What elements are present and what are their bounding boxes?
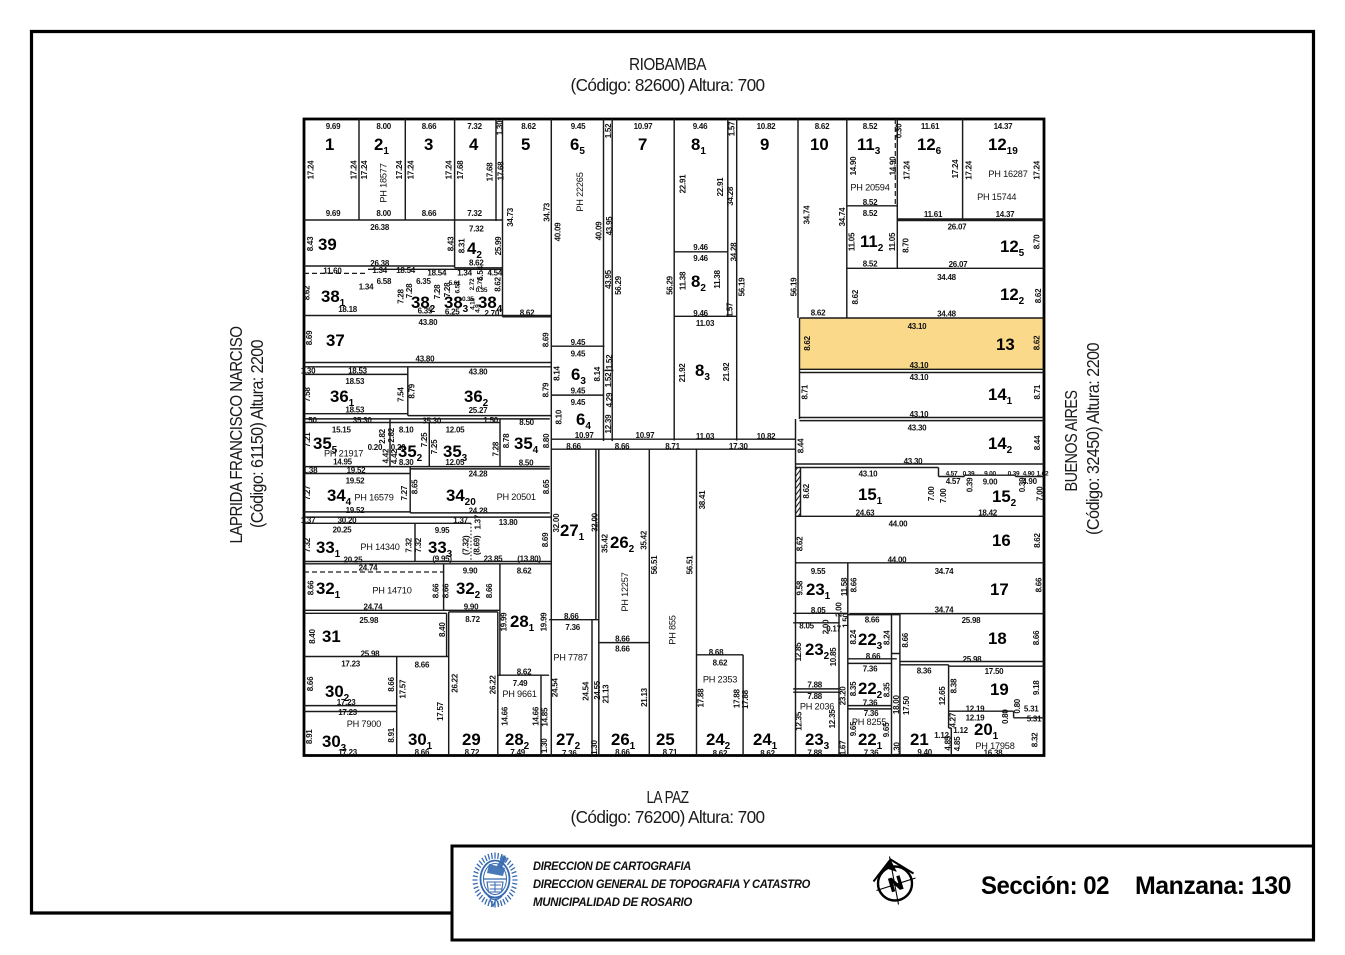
svg-text:11.61: 11.61: [924, 210, 943, 219]
svg-text:43.10: 43.10: [910, 410, 930, 419]
svg-text:11.03: 11.03: [696, 432, 715, 441]
svg-text:25.98: 25.98: [361, 650, 381, 659]
svg-text:7.36: 7.36: [863, 664, 878, 673]
svg-text:43.95: 43.95: [604, 269, 613, 289]
svg-text:17.24: 17.24: [1032, 160, 1041, 180]
svg-text:14.90: 14.90: [889, 156, 898, 176]
svg-text:18.42: 18.42: [978, 508, 998, 517]
svg-text:PH 14710: PH 14710: [372, 586, 411, 596]
svg-text:PH 18577: PH 18577: [379, 163, 389, 202]
svg-text:14.37: 14.37: [994, 122, 1014, 131]
svg-text:1.34: 1.34: [359, 282, 374, 291]
svg-text:11.58: 11.58: [840, 577, 849, 596]
svg-text:56.51: 56.51: [686, 555, 695, 575]
svg-text:8.00: 8.00: [376, 122, 391, 131]
svg-text:11.05: 11.05: [848, 232, 857, 251]
svg-text:17.68: 17.68: [496, 161, 505, 181]
svg-text:24.63: 24.63: [856, 509, 876, 518]
svg-text:8.38: 8.38: [950, 678, 959, 693]
svg-text:0.80: 0.80: [1013, 698, 1022, 713]
svg-text:9.45: 9.45: [571, 398, 586, 407]
svg-text:24.28: 24.28: [469, 470, 489, 479]
svg-text:21.13: 21.13: [601, 684, 610, 704]
svg-text:7.00: 7.00: [927, 486, 936, 501]
svg-text:40.09: 40.09: [595, 221, 604, 241]
svg-text:PH 20501: PH 20501: [497, 492, 536, 502]
svg-text:7.54: 7.54: [396, 387, 405, 402]
svg-text:7.32: 7.32: [467, 122, 482, 131]
svg-text:Manzana: 130: Manzana: 130: [1135, 872, 1291, 900]
svg-text:9.46: 9.46: [693, 309, 708, 318]
svg-text:43.80: 43.80: [419, 318, 439, 327]
svg-text:1: 1: [325, 135, 334, 154]
svg-text:1.57: 1.57: [728, 121, 737, 136]
svg-text:1.62: 1.62: [1037, 470, 1049, 477]
svg-text:26.22: 26.22: [489, 675, 498, 695]
svg-text:34.28: 34.28: [726, 186, 735, 206]
svg-text:8.66: 8.66: [1032, 630, 1041, 645]
svg-text:5.31: 5.31: [1024, 704, 1039, 713]
svg-text:8.36: 8.36: [917, 667, 932, 676]
svg-text:24.55: 24.55: [593, 680, 602, 700]
svg-text:8.91: 8.91: [387, 727, 396, 742]
svg-text:17.24: 17.24: [965, 160, 974, 180]
svg-text:7.36: 7.36: [562, 749, 577, 758]
svg-text:1.52: 1.52: [604, 123, 613, 138]
svg-text:12.05: 12.05: [446, 426, 466, 435]
svg-text:8.62: 8.62: [713, 659, 728, 668]
svg-text:4.85: 4.85: [953, 736, 962, 751]
svg-text:17.24: 17.24: [445, 160, 454, 180]
svg-text:9.45: 9.45: [571, 350, 586, 359]
svg-text:18.18: 18.18: [338, 305, 358, 314]
svg-text:9.65: 9.65: [849, 721, 858, 736]
svg-text:8.62: 8.62: [521, 122, 536, 131]
svg-text:PH 2353: PH 2353: [703, 675, 737, 685]
svg-text:4.85: 4.85: [944, 735, 953, 750]
svg-text:9.40: 9.40: [917, 748, 932, 757]
svg-text:PH 16287: PH 16287: [988, 169, 1027, 179]
svg-text:35.42: 35.42: [640, 530, 649, 550]
svg-text:8.14: 8.14: [593, 366, 602, 381]
svg-text:0.39: 0.39: [963, 470, 975, 477]
svg-text:8.62: 8.62: [469, 259, 484, 268]
svg-text:4: 4: [469, 135, 479, 154]
svg-text:8.62: 8.62: [1034, 288, 1043, 303]
svg-text:8.62: 8.62: [851, 289, 860, 304]
svg-text:43.10: 43.10: [859, 469, 879, 478]
svg-text:34.73: 34.73: [506, 207, 515, 227]
svg-text:17.23: 17.23: [337, 698, 357, 707]
svg-text:8.14: 8.14: [552, 366, 561, 381]
svg-text:8.35: 8.35: [849, 681, 858, 696]
svg-text:LAPRIDA FRANCISCO NARCISO: LAPRIDA FRANCISCO NARCISO: [226, 326, 246, 543]
svg-text:9.69: 9.69: [326, 122, 341, 131]
svg-text:8.44: 8.44: [796, 438, 805, 453]
svg-text:22.91: 22.91: [679, 174, 688, 194]
svg-text:10.97: 10.97: [636, 431, 656, 440]
svg-text:17: 17: [990, 580, 1009, 599]
svg-text:8.62: 8.62: [802, 483, 811, 498]
svg-text:9.58: 9.58: [796, 580, 805, 595]
svg-text:17.24: 17.24: [360, 160, 369, 180]
svg-text:43.80: 43.80: [469, 368, 489, 377]
svg-text:31: 31: [322, 627, 341, 646]
svg-text:38.41: 38.41: [698, 490, 707, 510]
svg-text:8.66: 8.66: [615, 748, 630, 757]
svg-text:8.68: 8.68: [709, 648, 724, 657]
svg-text:0.39: 0.39: [966, 477, 975, 492]
svg-text:11.38: 11.38: [713, 270, 722, 289]
svg-text:43.95: 43.95: [605, 216, 614, 236]
svg-text:24.74: 24.74: [364, 603, 384, 612]
svg-text:(7.32): (7.32): [462, 535, 471, 555]
svg-text:29: 29: [462, 730, 481, 749]
svg-text:9.95: 9.95: [435, 526, 450, 535]
svg-text:18.00: 18.00: [892, 695, 901, 715]
svg-text:17.24: 17.24: [407, 160, 416, 180]
svg-text:9.45: 9.45: [571, 122, 586, 131]
svg-text:34.28: 34.28: [730, 242, 739, 262]
svg-text:19.52: 19.52: [346, 477, 366, 486]
svg-text:18.53: 18.53: [345, 377, 365, 386]
svg-text:35.30: 35.30: [353, 416, 373, 425]
svg-text:(Código: 76200) Altura: 700: (Código: 76200) Altura: 700: [570, 807, 764, 827]
svg-text:4.57: 4.57: [946, 477, 961, 486]
svg-text:(Código: 32450) Altura: 2200: (Código: 32450) Altura: 2200: [1083, 343, 1103, 535]
svg-text:7.27: 7.27: [303, 485, 312, 500]
svg-text:44.00: 44.00: [889, 519, 909, 528]
svg-text:16: 16: [992, 531, 1011, 550]
svg-text:12.35: 12.35: [795, 711, 804, 731]
svg-text:9.46: 9.46: [693, 254, 708, 263]
svg-text:7.49: 7.49: [510, 748, 525, 757]
svg-text:7.88: 7.88: [807, 681, 822, 690]
svg-text:8.05: 8.05: [799, 621, 814, 630]
svg-text:34.48: 34.48: [937, 273, 957, 282]
svg-text:MUNICIPALIDAD DE ROSARIO: MUNICIPALIDAD DE ROSARIO: [533, 896, 692, 909]
svg-text:15.15: 15.15: [332, 426, 352, 435]
svg-text:8.50: 8.50: [519, 418, 534, 427]
svg-text:18.53: 18.53: [348, 366, 368, 375]
svg-text:2.00: 2.00: [835, 602, 844, 617]
svg-text:PH 20594: PH 20594: [850, 183, 889, 193]
svg-text:1.30: 1.30: [892, 742, 901, 757]
svg-text:8.05: 8.05: [811, 606, 826, 615]
svg-text:25.27: 25.27: [469, 406, 489, 415]
svg-text:DIRECCION DE CARTOGRAFIA: DIRECCION DE CARTOGRAFIA: [533, 860, 691, 873]
svg-text:18: 18: [988, 629, 1007, 648]
svg-text:1.34: 1.34: [457, 269, 472, 278]
svg-text:25.98: 25.98: [359, 616, 379, 625]
svg-text:8.62: 8.62: [1033, 335, 1042, 350]
svg-text:25.98: 25.98: [963, 655, 983, 664]
svg-text:25.99: 25.99: [494, 236, 503, 256]
svg-text:8.40: 8.40: [438, 622, 447, 637]
svg-text:8.66: 8.66: [566, 442, 581, 451]
svg-text:25: 25: [656, 730, 675, 749]
svg-text:9.45: 9.45: [571, 338, 586, 347]
svg-text:17.24: 17.24: [395, 160, 404, 180]
svg-text:8.66: 8.66: [387, 676, 396, 691]
svg-text:7.32: 7.32: [467, 209, 482, 218]
svg-text:PH 7787: PH 7787: [553, 653, 587, 663]
svg-text:8.24: 8.24: [883, 630, 892, 645]
svg-text:8.65: 8.65: [542, 479, 551, 494]
svg-text:12.39: 12.39: [604, 414, 613, 434]
svg-text:17.88: 17.88: [697, 688, 706, 708]
svg-text:8.62: 8.62: [517, 667, 532, 676]
svg-text:8.71: 8.71: [801, 384, 810, 399]
svg-text:4.54: 4.54: [488, 269, 503, 278]
svg-text:8.72: 8.72: [465, 748, 480, 757]
svg-text:18.54: 18.54: [396, 266, 416, 275]
svg-text:7.32: 7.32: [303, 537, 312, 552]
svg-text:RIOBAMBA: RIOBAMBA: [629, 54, 707, 74]
svg-text:17.24: 17.24: [349, 160, 358, 180]
svg-text:4.9: 4.9: [475, 304, 482, 313]
svg-text:8.80: 8.80: [542, 433, 551, 448]
svg-text:4.42: 4.42: [381, 448, 390, 463]
svg-text:2.82: 2.82: [378, 428, 387, 443]
svg-text:0.30: 0.30: [894, 123, 903, 138]
svg-text:7.32: 7.32: [405, 537, 414, 552]
svg-text:8.62: 8.62: [803, 335, 812, 350]
svg-text:8.62: 8.62: [493, 276, 502, 291]
svg-text:26.07: 26.07: [949, 260, 969, 269]
svg-text:12.65: 12.65: [938, 686, 947, 706]
svg-text:4.29: 4.29: [605, 392, 614, 407]
svg-text:6.35: 6.35: [416, 277, 431, 286]
svg-text:17.68: 17.68: [486, 162, 495, 182]
svg-text:8.65: 8.65: [410, 479, 419, 494]
svg-text:8.62: 8.62: [517, 566, 532, 575]
svg-text:8.71: 8.71: [1033, 384, 1042, 399]
svg-text:3: 3: [424, 135, 433, 154]
svg-text:6.58: 6.58: [377, 277, 392, 286]
svg-text:7.00: 7.00: [1036, 486, 1045, 501]
svg-text:(13.80): (13.80): [517, 555, 541, 564]
svg-text:7: 7: [638, 135, 647, 154]
svg-text:Sección: 02: Sección: 02: [981, 872, 1109, 900]
svg-text:9: 9: [760, 135, 769, 154]
svg-text:8.40: 8.40: [308, 629, 317, 644]
svg-text:8.66: 8.66: [442, 583, 451, 598]
svg-text:1.57: 1.57: [726, 302, 735, 317]
svg-text:22.91: 22.91: [716, 177, 725, 197]
svg-text:8.79: 8.79: [408, 383, 417, 398]
svg-text:7.25: 7.25: [430, 439, 439, 454]
svg-text:17.88: 17.88: [732, 689, 741, 709]
svg-text:1.37: 1.37: [474, 514, 483, 529]
svg-text:5.31: 5.31: [1027, 715, 1042, 724]
svg-text:8.69: 8.69: [542, 332, 551, 347]
svg-text:37: 37: [326, 331, 345, 350]
svg-text:8.62: 8.62: [1033, 533, 1042, 548]
svg-text:8.66: 8.66: [850, 577, 859, 592]
svg-text:21.13: 21.13: [640, 687, 649, 707]
svg-text:30.20: 30.20: [338, 516, 358, 525]
svg-text:11.61: 11.61: [921, 122, 940, 131]
svg-text:43.30: 43.30: [904, 457, 924, 466]
svg-text:9.18: 9.18: [1032, 680, 1041, 695]
svg-text:1.50: 1.50: [302, 416, 317, 425]
svg-text:56.19: 56.19: [738, 277, 747, 297]
svg-text:9.90: 9.90: [464, 603, 479, 612]
svg-text:14.95: 14.95: [333, 457, 353, 466]
svg-text:12.05: 12.05: [445, 458, 465, 467]
svg-text:14.66: 14.66: [531, 706, 540, 726]
svg-text:43.30: 43.30: [908, 424, 928, 433]
svg-text:14.66: 14.66: [500, 706, 509, 726]
svg-text:34.74: 34.74: [935, 606, 955, 615]
svg-text:12.85: 12.85: [794, 642, 803, 662]
svg-text:8.79: 8.79: [542, 382, 551, 397]
svg-text:PH 12257: PH 12257: [620, 572, 630, 611]
svg-text:17.57: 17.57: [399, 679, 408, 699]
svg-text:9.46: 9.46: [693, 122, 708, 131]
svg-text:8.72: 8.72: [465, 615, 480, 624]
svg-text:34.74: 34.74: [803, 205, 812, 225]
svg-text:8.66: 8.66: [431, 583, 440, 598]
svg-text:8.62: 8.62: [815, 122, 830, 131]
svg-text:56.29: 56.29: [614, 275, 623, 295]
svg-text:34.48: 34.48: [937, 310, 957, 319]
svg-text:24.74: 24.74: [359, 563, 379, 572]
svg-text:6.25: 6.25: [445, 308, 460, 317]
svg-text:8.66: 8.66: [306, 676, 315, 691]
svg-text:1.38: 1.38: [303, 466, 318, 475]
svg-text:1.50: 1.50: [483, 416, 498, 425]
svg-text:9.00: 9.00: [983, 477, 998, 486]
svg-text:9.69: 9.69: [326, 209, 341, 218]
svg-text:26.22: 26.22: [451, 673, 460, 693]
svg-text:7.88: 7.88: [807, 748, 822, 757]
svg-text:8.43: 8.43: [447, 236, 456, 251]
svg-text:56.29: 56.29: [666, 275, 675, 295]
svg-text:8.31: 8.31: [458, 238, 467, 253]
svg-text:7.21: 7.21: [303, 432, 312, 447]
svg-text:8.66: 8.66: [415, 748, 430, 757]
svg-text:23.85: 23.85: [484, 555, 504, 564]
svg-text:(Código: 82600) Altura: 700: (Código: 82600) Altura: 700: [570, 75, 764, 95]
svg-text:17.23: 17.23: [338, 708, 358, 717]
svg-text:8.52: 8.52: [863, 122, 878, 131]
svg-text:9.65: 9.65: [882, 722, 891, 737]
svg-text:24.54: 24.54: [550, 678, 559, 698]
svg-text:2.70: 2.70: [485, 309, 500, 318]
svg-text:19: 19: [990, 680, 1009, 699]
svg-text:21.92: 21.92: [678, 363, 687, 383]
svg-text:43.10: 43.10: [910, 373, 930, 382]
svg-text:8.62: 8.62: [520, 309, 535, 318]
svg-text:14.85: 14.85: [541, 707, 550, 727]
svg-text:8.66: 8.66: [415, 661, 430, 670]
svg-text:7.28: 7.28: [491, 441, 500, 456]
svg-text:43.10: 43.10: [910, 361, 930, 370]
svg-text:32.00: 32.00: [591, 512, 600, 532]
svg-text:20.25: 20.25: [333, 525, 353, 534]
svg-text:8.71: 8.71: [665, 442, 680, 451]
svg-text:8.70: 8.70: [901, 238, 910, 253]
svg-text:10.97: 10.97: [634, 122, 654, 131]
svg-text:1.12: 1.12: [953, 726, 968, 735]
svg-text:8.70: 8.70: [1032, 234, 1041, 249]
svg-text:7.32: 7.32: [414, 537, 423, 552]
svg-text:19.52: 19.52: [347, 466, 367, 475]
svg-text:21.92: 21.92: [722, 362, 731, 382]
svg-text:35.30: 35.30: [422, 417, 442, 426]
svg-text:7.32: 7.32: [469, 225, 484, 234]
svg-text:7.58: 7.58: [303, 387, 312, 402]
svg-text:8.30: 8.30: [399, 458, 414, 467]
svg-text:8.69: 8.69: [305, 330, 314, 345]
svg-text:8.66: 8.66: [615, 442, 630, 451]
svg-text:35.42: 35.42: [600, 533, 609, 553]
svg-text:10.85: 10.85: [829, 647, 838, 667]
svg-text:5: 5: [521, 135, 530, 154]
svg-text:0.80: 0.80: [1001, 709, 1010, 724]
svg-text:9.45: 9.45: [571, 387, 586, 396]
svg-text:39: 39: [318, 235, 337, 254]
svg-text:12.19: 12.19: [966, 704, 986, 713]
svg-text:8.43: 8.43: [306, 236, 315, 251]
svg-text:13: 13: [996, 335, 1015, 354]
svg-text:8.62: 8.62: [811, 309, 826, 318]
svg-text:7.25: 7.25: [420, 432, 429, 447]
svg-text:18.53: 18.53: [345, 405, 365, 414]
svg-text:32.00: 32.00: [552, 513, 561, 533]
svg-text:9.46: 9.46: [693, 243, 708, 252]
svg-text:8.69: 8.69: [541, 532, 550, 547]
svg-text:0.39: 0.39: [1008, 470, 1020, 477]
svg-text:17.57: 17.57: [436, 701, 445, 721]
svg-text:8.66: 8.66: [866, 652, 881, 661]
svg-text:17.68: 17.68: [456, 160, 465, 180]
svg-text:7.36: 7.36: [863, 698, 878, 707]
svg-text:17.24: 17.24: [903, 160, 912, 180]
svg-text:26.38: 26.38: [370, 259, 390, 268]
svg-text:1.52: 1.52: [605, 354, 614, 369]
svg-text:PH 9661: PH 9661: [502, 689, 536, 699]
svg-text:19.99: 19.99: [540, 612, 549, 632]
svg-text:8.62: 8.62: [713, 749, 728, 758]
svg-text:PH 16579: PH 16579: [354, 492, 393, 502]
svg-text:25.98: 25.98: [962, 616, 982, 625]
svg-text:PH 15744: PH 15744: [977, 192, 1016, 202]
svg-text:23.20: 23.20: [839, 686, 848, 706]
svg-text:20.25: 20.25: [344, 556, 364, 565]
svg-text:1.67: 1.67: [838, 740, 847, 755]
svg-text:9.00: 9.00: [984, 470, 996, 477]
svg-text:DIRECCION GENERAL DE TOPOGRAFI: DIRECCION GENERAL DE TOPOGRAFIA Y CATAST…: [533, 878, 810, 891]
svg-text:17.24: 17.24: [951, 159, 960, 179]
svg-text:34.74: 34.74: [935, 567, 955, 576]
svg-text:(Código: 61150) Altura: 2200: (Código: 61150) Altura: 2200: [247, 340, 267, 528]
svg-text:7.27: 7.27: [400, 485, 409, 500]
svg-text:8.00: 8.00: [376, 209, 391, 218]
svg-text:1.37: 1.37: [453, 516, 468, 525]
svg-text:8.35: 8.35: [883, 682, 892, 697]
svg-text:14.37: 14.37: [996, 210, 1016, 219]
svg-text:11.60: 11.60: [323, 267, 342, 276]
svg-text:8.52: 8.52: [863, 260, 878, 269]
svg-text:17.24: 17.24: [306, 160, 315, 180]
svg-text:8.66: 8.66: [564, 612, 579, 621]
svg-text:16.38: 16.38: [984, 748, 1004, 757]
svg-text:6.54: 6.54: [455, 281, 462, 293]
svg-text:24.28: 24.28: [469, 507, 489, 516]
